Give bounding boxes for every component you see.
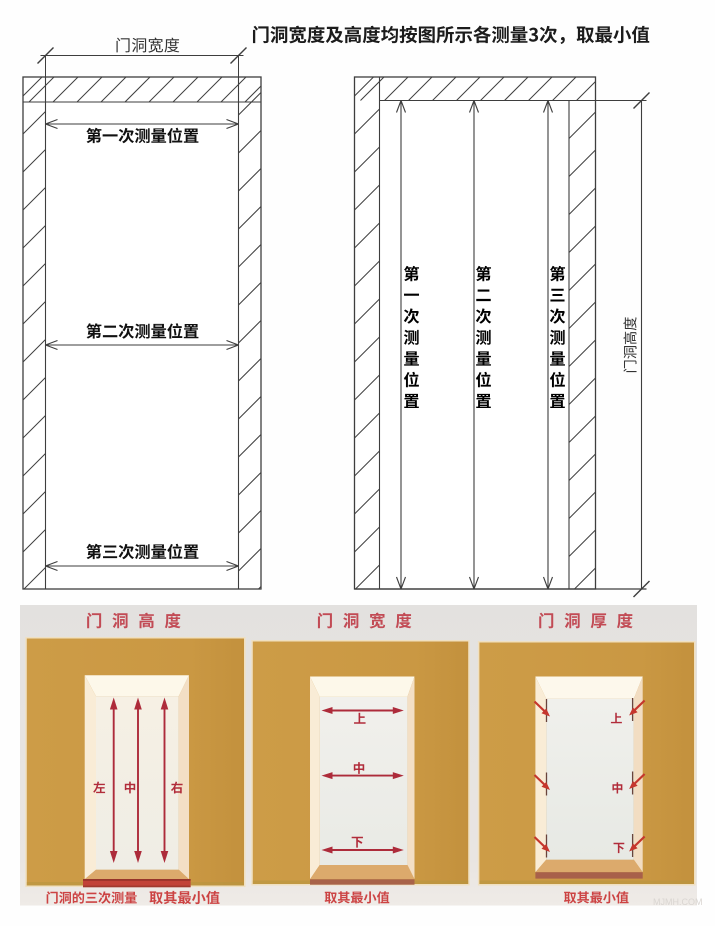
svg-text:MJMH.COM: MJMH.COM: [653, 897, 703, 907]
